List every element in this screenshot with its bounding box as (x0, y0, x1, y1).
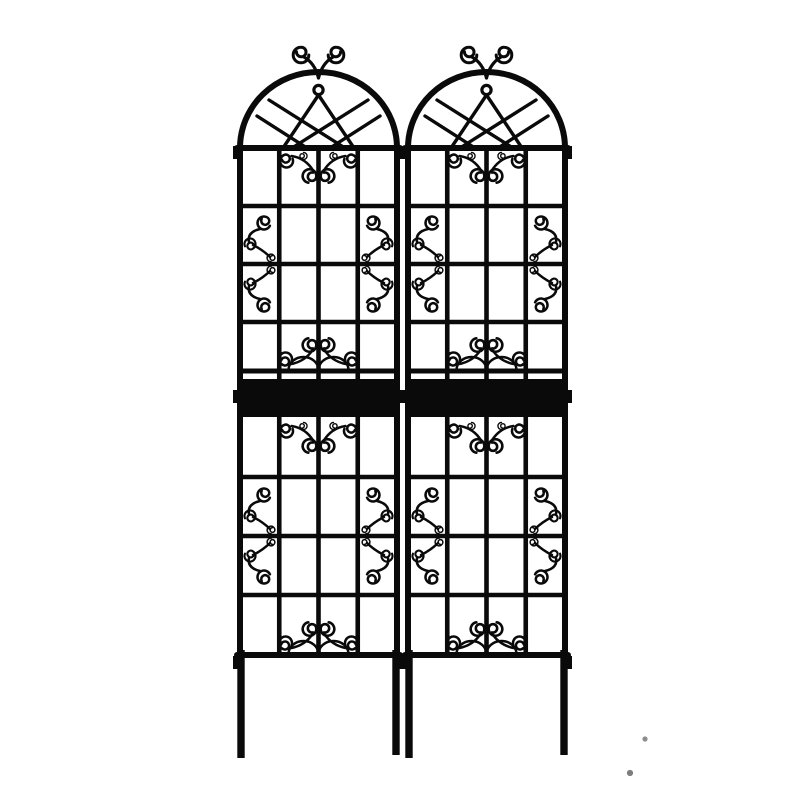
trellis-panel-left (233, 47, 404, 758)
dust-speck (627, 770, 633, 776)
trellis-panel-right (401, 47, 572, 758)
dust-specks (627, 736, 648, 776)
trellis-product-image (0, 0, 800, 800)
dust-speck (642, 736, 647, 741)
product-photo-canvas: Two identical black metal arched garden … (0, 0, 800, 800)
